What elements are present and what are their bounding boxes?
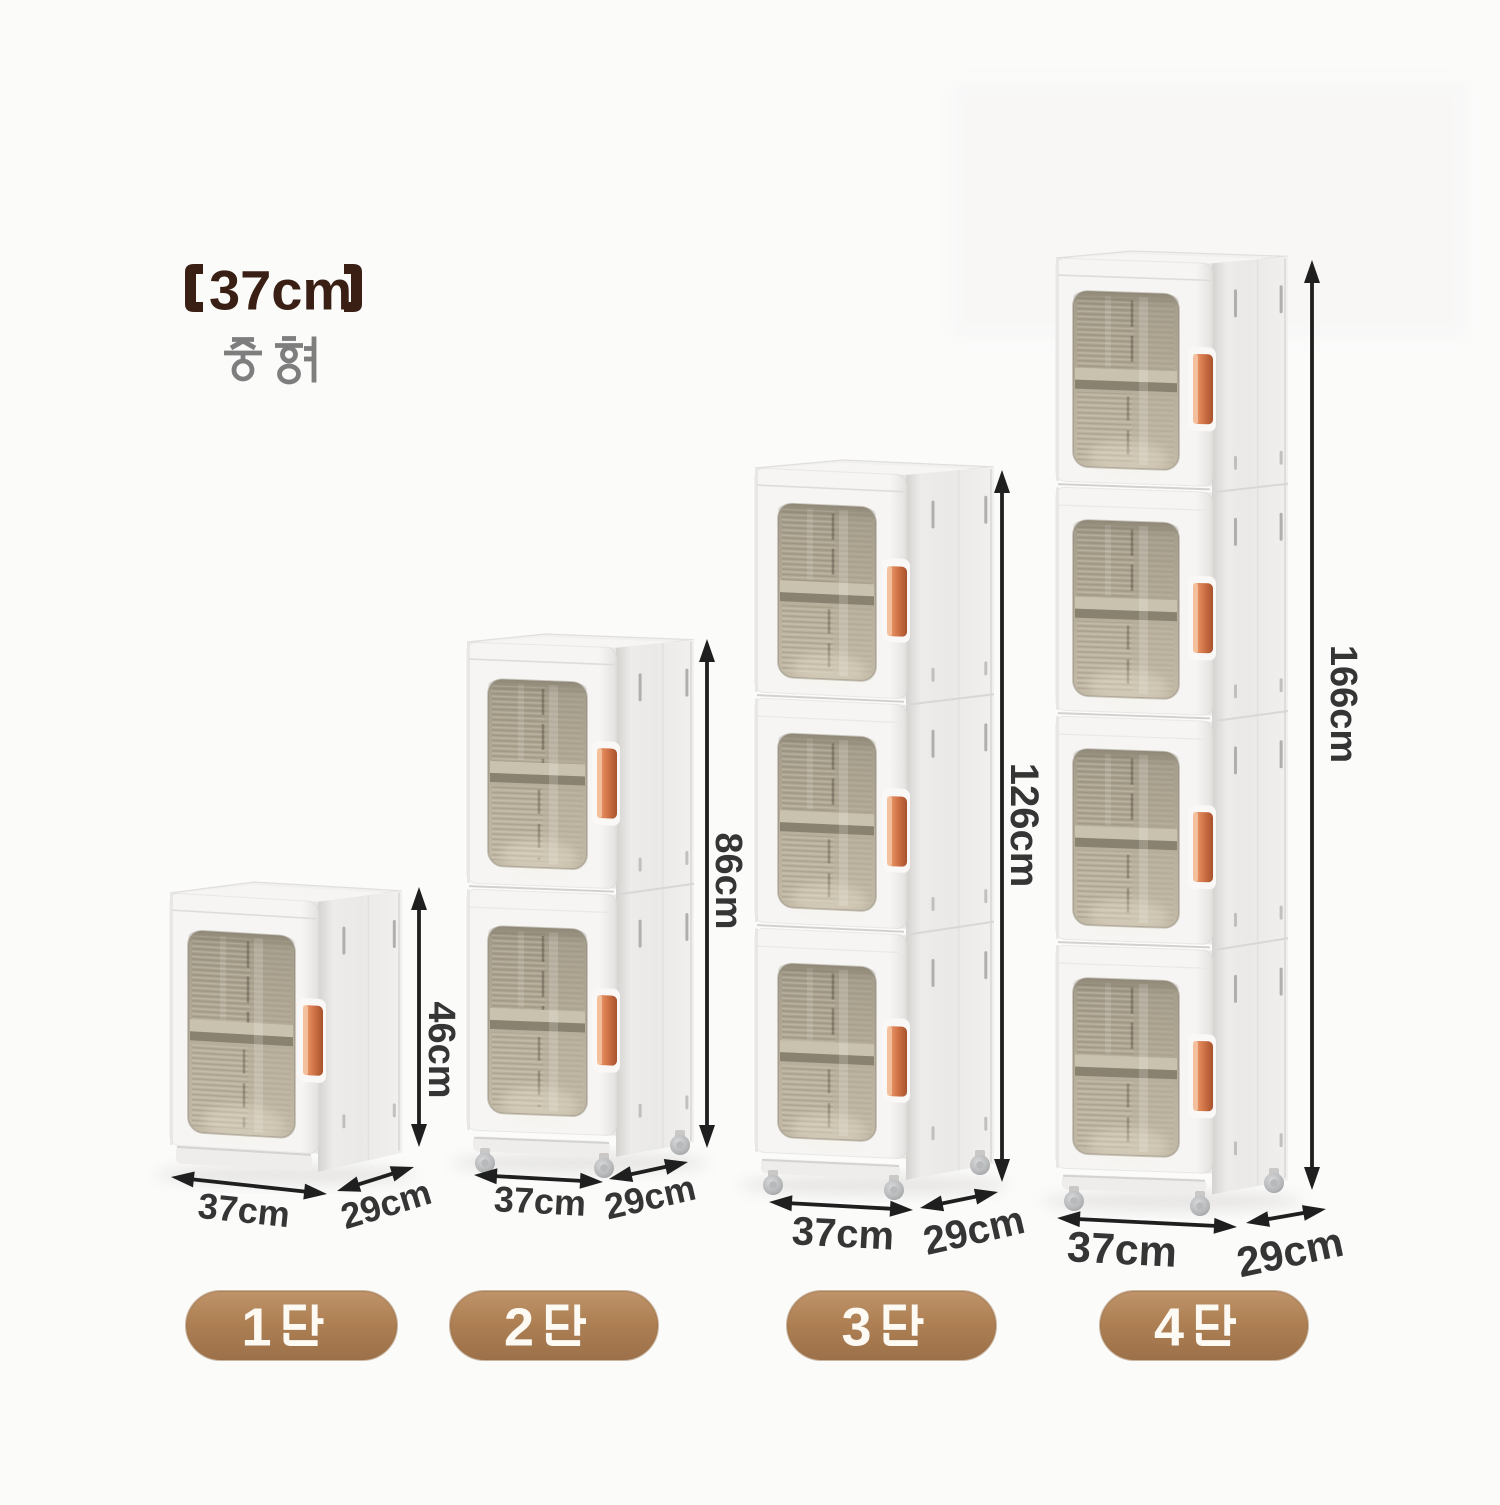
svg-text:126cm: 126cm	[1002, 763, 1046, 888]
svg-text:3: 3	[841, 1298, 871, 1358]
svg-text:1: 1	[241, 1298, 271, 1358]
svg-text:166cm: 166cm	[1322, 645, 1364, 763]
svg-text:37cm: 37cm	[791, 1209, 895, 1258]
svg-text:37cm: 37cm	[1066, 1223, 1178, 1277]
svg-text:37cm: 37cm	[493, 1178, 587, 1224]
svg-text:2: 2	[504, 1298, 534, 1358]
svg-text:46cm: 46cm	[420, 1001, 462, 1098]
svg-text:4: 4	[1154, 1298, 1184, 1358]
svg-text:37cm: 37cm	[209, 259, 352, 322]
svg-text:86cm: 86cm	[707, 832, 749, 929]
